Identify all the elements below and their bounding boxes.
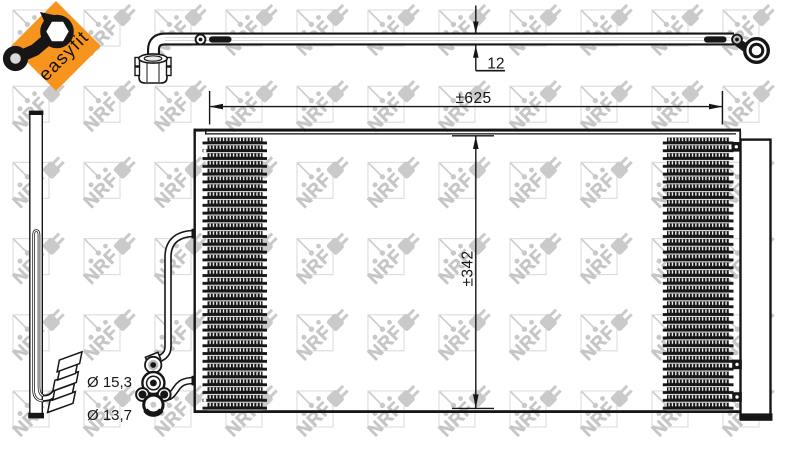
svg-text:Ø 15,3: Ø 15,3 xyxy=(87,374,132,391)
svg-text:12: 12 xyxy=(487,56,504,73)
svg-text:±625: ±625 xyxy=(456,90,492,107)
svg-text:±342: ±342 xyxy=(460,251,477,287)
svg-text:Ø 13,7: Ø 13,7 xyxy=(87,407,132,424)
